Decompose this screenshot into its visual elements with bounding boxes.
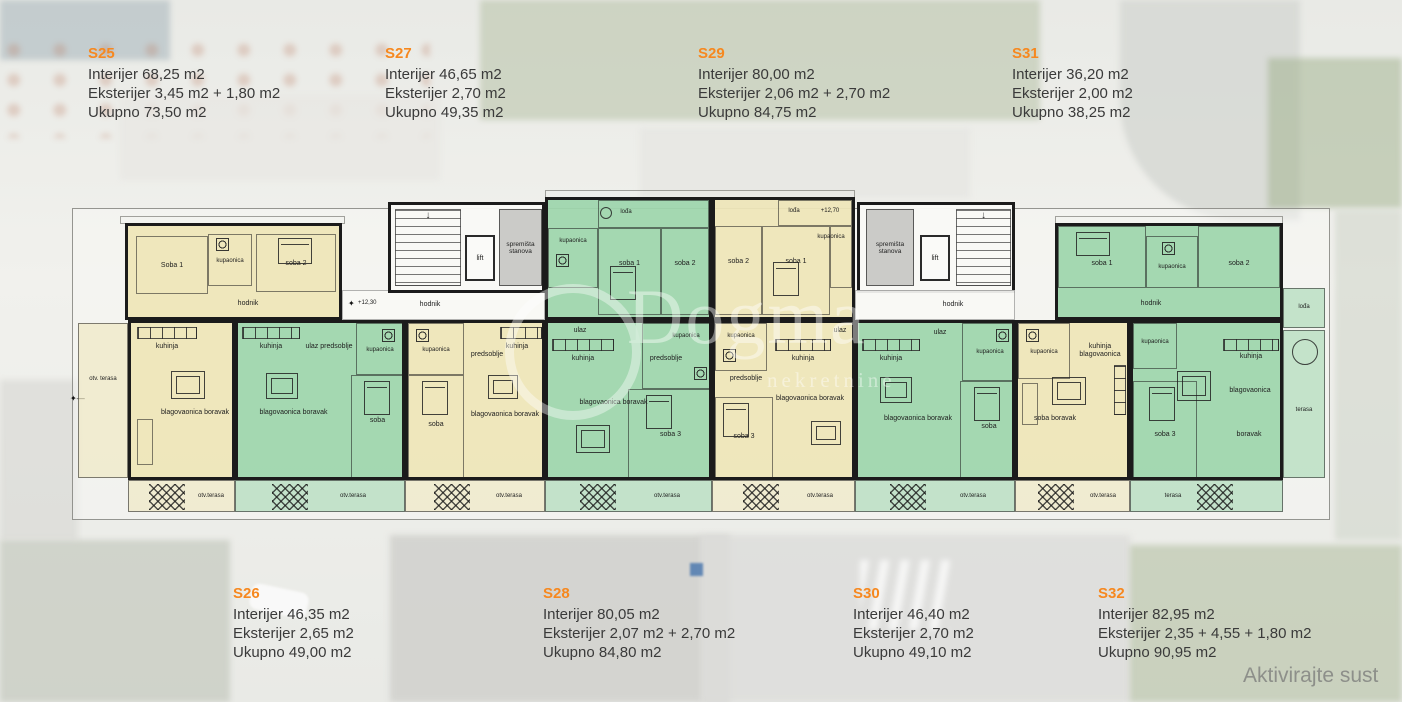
terrace-right: terasa xyxy=(1283,330,1325,478)
terrace-hatch-icon xyxy=(890,484,926,510)
terrace-hatch-icon xyxy=(743,484,779,510)
apartment-s25-wing: Soba 1 kupaonica soba 2 hodnik xyxy=(125,223,342,320)
room-label-soba: soba xyxy=(351,417,404,425)
room-label-kuhinja: kuhinja xyxy=(492,343,542,351)
dining-table-icon xyxy=(1052,377,1086,405)
unit-total: Ukupno 84,75 m2 xyxy=(698,103,1018,122)
terrace-right-label: terasa xyxy=(1286,407,1322,414)
terrace-s30: otv.terasa xyxy=(855,480,1015,512)
storage-room: spremišta stanova xyxy=(866,209,914,286)
background-right-strip xyxy=(1335,210,1402,540)
unit-exterior: Eksterijer 2,06 m2 + 2,70 m2 xyxy=(698,84,1018,103)
terrace-s27: otv.terasa xyxy=(405,480,545,512)
room-label-predsoblje: predsoblje xyxy=(723,375,769,383)
level-label: +12,30 xyxy=(358,300,388,307)
unit-interior: Interijer 82,95 m2 xyxy=(1098,605,1402,624)
washer-icon xyxy=(556,254,569,267)
apartment-s29: kupaonica predsoblje kuhinja ulaz blagov… xyxy=(712,320,855,480)
background-sign xyxy=(690,563,703,576)
terrace-s28: otv.terasa xyxy=(545,480,712,512)
room-label-kupaonica-top: kupaonica xyxy=(1146,264,1198,271)
room-label-blagovaonica: blagovaonica boravak xyxy=(159,409,231,417)
unit-id: S25 xyxy=(88,44,408,63)
sofa-icon xyxy=(137,419,153,465)
terrace-label: otv.terasa xyxy=(484,493,534,500)
unit-id: S28 xyxy=(543,584,863,603)
apartment-s25: kuhinja blagovaonica boravak xyxy=(128,320,235,480)
kitchen-appliances-icon xyxy=(137,327,197,339)
background-building-top xyxy=(640,128,970,198)
room-label-kuhinja: kuhinja xyxy=(862,355,920,363)
room-label-ulaz: ulaz xyxy=(560,327,600,335)
room-label-soba3: soba 3 xyxy=(1133,431,1197,439)
room-label-kupaonica: kupaonica xyxy=(208,258,252,265)
storage-label: spremišta stanova xyxy=(869,241,911,255)
apartment-s32: kupaonica kuhinja blagovaonica soba 3 bo… xyxy=(1130,320,1283,480)
corridor-label-2: hodnik xyxy=(920,301,986,309)
unit-info-s26: S26 Interijer 46,35 m2 Eksterijer 2,65 m… xyxy=(233,584,553,662)
bed-icon xyxy=(610,266,636,300)
dining-table-icon xyxy=(171,371,205,399)
room-label-kupaonica: kupaonica xyxy=(1018,349,1070,356)
dining-table-icon xyxy=(811,421,841,445)
bed-icon xyxy=(364,381,390,415)
apartment-s31: kupaonica kuhinja blagovaonica soba bora… xyxy=(1015,320,1130,480)
room-kupaonica xyxy=(715,323,767,371)
unit-interior: Interijer 68,25 m2 xyxy=(88,65,408,84)
stairs-icon: ↓ xyxy=(395,209,461,286)
stairs-icon: ↓ xyxy=(956,209,1011,286)
unit-interior: Interijer 46,35 m2 xyxy=(233,605,553,624)
dining-table-icon xyxy=(488,375,518,399)
background-paving-left xyxy=(0,380,78,540)
room-label-loda: lođa xyxy=(606,209,646,216)
room-label-kupaonica-top: kupaonica xyxy=(807,234,855,241)
room-label-soba: soba xyxy=(408,421,464,429)
unit-id: S31 xyxy=(1012,44,1332,63)
room-label-kupaonica-top: kupaonica xyxy=(548,238,598,245)
bed-icon xyxy=(278,238,312,264)
corridor-label: hodnik xyxy=(400,301,460,309)
washer-icon xyxy=(382,329,395,342)
room-label-kupaonica: kupaonica xyxy=(356,347,404,354)
bed-icon xyxy=(1149,387,1175,421)
page: { "accent": "#f6881f", "colors": { "apar… xyxy=(0,0,1402,702)
dining-table-icon xyxy=(576,425,610,453)
unit-interior: Interijer 46,65 m2 xyxy=(385,65,705,84)
kitchen-appliances-icon xyxy=(775,339,831,351)
washer-icon xyxy=(216,238,229,251)
room-label-soba3: soba 3 xyxy=(628,431,713,439)
unit-interior: Interijer 80,05 m2 xyxy=(543,605,863,624)
kitchen-appliances-icon xyxy=(1114,365,1126,415)
room-label-kupaonica: kupaonica xyxy=(408,347,464,354)
apartment-s28-wing: lođa kupaonica soba 1 soba 2 xyxy=(545,197,712,320)
room-label-kuhinja: kuhinja xyxy=(1223,353,1279,361)
room-label-kupaonica: kupaonica xyxy=(715,333,767,340)
room-label-kupaonica: kupaonica xyxy=(962,349,1018,356)
unit-total: Ukupno 84,80 m2 xyxy=(543,643,863,662)
room-label-kupaonica: kupaonica xyxy=(1133,339,1177,346)
room-soba2 xyxy=(715,226,762,315)
bed-icon xyxy=(646,395,672,429)
bed-icon xyxy=(422,381,448,415)
kitchen-appliances-icon xyxy=(862,339,920,351)
unit-info-s25: S25 Interijer 68,25 m2 Eksterijer 3,45 m… xyxy=(88,44,408,122)
lift: lift xyxy=(465,235,495,281)
room-label-hodnik: hodnik xyxy=(1120,300,1182,308)
room-label-soba: soba xyxy=(960,423,1018,431)
washer-icon xyxy=(416,329,429,342)
washer-icon xyxy=(723,349,736,362)
unit-info-s27: S27 Interijer 46,65 m2 Eksterijer 2,70 m… xyxy=(385,44,705,122)
unit-exterior: Eksterijer 2,07 m2 + 2,70 m2 xyxy=(543,624,863,643)
unit-id: S26 xyxy=(233,584,553,603)
washer-icon xyxy=(694,367,707,380)
washer-icon xyxy=(996,329,1009,342)
kitchen-appliances-icon xyxy=(500,327,542,339)
room-loda-right: lođa xyxy=(1283,288,1325,328)
room-label-blagovaonica: blagovaonica boravak xyxy=(468,411,542,419)
terrace-hatch-icon xyxy=(1197,484,1233,510)
unit-exterior: Eksterijer 2,00 m2 xyxy=(1012,84,1332,103)
room-label-kuhinja: kuhinja xyxy=(137,343,197,351)
terrace-hatch-icon xyxy=(580,484,616,510)
terrace-s29: otv.terasa xyxy=(712,480,855,512)
room-label-kupaonica: kupaonica xyxy=(660,333,712,340)
terrace-left: otv. terasa xyxy=(78,323,128,478)
os-activation-watermark: Aktivirajte sust xyxy=(1243,664,1378,688)
unit-info-s29: S29 Interijer 80,00 m2 Eksterijer 2,06 m… xyxy=(698,44,1018,122)
room-label-ulaz: ulaz predsoblje xyxy=(304,343,354,351)
apartment-s28: ulaz kuhinja blagovaonica boravak kupaon… xyxy=(545,320,712,480)
room-label-loda-right: lođa xyxy=(1286,304,1322,311)
washer-icon xyxy=(1026,329,1039,342)
room-label-predsoblje: predsoblje xyxy=(642,355,690,363)
unit-id: S29 xyxy=(698,44,1018,63)
room-label-loda: lođa xyxy=(779,208,809,215)
lift: lift xyxy=(920,235,950,281)
room-label-boravak: boravak xyxy=(1219,431,1279,439)
room-label-kuhinja: kuhinja xyxy=(552,355,614,363)
floor-plan: ✦— Soba 1 kupaonica soba 2 hodnik ✦ +12,… xyxy=(70,190,1340,535)
room-label-blagovaonica: blagovaonica xyxy=(1219,387,1281,395)
apartment-s26: kuhinja ulaz predsoblje kupaonica blagov… xyxy=(235,320,405,480)
terrace-s25: otv.terasa xyxy=(128,480,235,512)
unit-total: Ukupno 38,25 m2 xyxy=(1012,103,1332,122)
apartment-s27: kupaonica predsoblje kuhinja soba blagov… xyxy=(405,320,545,480)
apartment-s30: kuhinja ulaz kupaonica blagovaonica bora… xyxy=(855,320,1015,480)
round-table-icon xyxy=(1292,339,1318,365)
storage-label: spremišta stanova xyxy=(502,241,539,255)
room-label-blagovaonica: blagovaonica boravak xyxy=(256,409,331,417)
room-label-blagovaonica: blagovaonica boravak xyxy=(771,395,849,403)
dining-table-icon xyxy=(880,377,912,403)
terrace-hatch-icon xyxy=(1038,484,1074,510)
kitchen-appliances-icon xyxy=(552,339,614,351)
washer-icon xyxy=(1162,242,1175,255)
unit-info-s32: S32 Interijer 82,95 m2 Eksterijer 2,35 +… xyxy=(1098,584,1402,662)
terrace-s32: terasa xyxy=(1130,480,1283,512)
room-label-ulaz: ulaz xyxy=(825,327,855,335)
dining-table-icon xyxy=(266,373,298,399)
room-kupaonica xyxy=(1133,323,1177,369)
terrace-left-label: otv. terasa xyxy=(80,376,126,383)
terrace-s31: otv.terasa xyxy=(1015,480,1130,512)
unit-total: Ukupno 90,95 m2 xyxy=(1098,643,1402,662)
unit-total: Ukupno 49,00 m2 xyxy=(233,643,553,662)
table-round-icon xyxy=(600,207,612,219)
room-label-kuhinja: kuhinja xyxy=(775,355,831,363)
level-marker-icon: ✦ xyxy=(348,299,355,308)
level-label-2: +12,70 xyxy=(811,208,849,215)
room-label-predsoblje: predsoblje xyxy=(464,351,510,359)
room-label-soba2: soba 2 xyxy=(715,258,762,266)
unit-id: S27 xyxy=(385,44,705,63)
kitchen-appliances-icon xyxy=(242,327,300,339)
background-green-bottom-left xyxy=(0,540,230,702)
room-label-kuhinja: kuhinja xyxy=(242,343,300,351)
unit-info-s28: S28 Interijer 80,05 m2 Eksterijer 2,07 m… xyxy=(543,584,863,662)
kitchen-appliances-icon xyxy=(1223,339,1279,351)
bed-icon xyxy=(1076,232,1110,256)
room-label-ulaz: ulaz xyxy=(922,329,958,337)
unit-interior: Interijer 36,20 m2 xyxy=(1012,65,1332,84)
terrace-label: otv.terasa xyxy=(1080,493,1126,500)
room-label-soba1: soba 1 xyxy=(1058,260,1146,268)
unit-interior: Interijer 80,00 m2 xyxy=(698,65,1018,84)
unit-total: Ukupno 49,35 m2 xyxy=(385,103,705,122)
unit-info-s31: S31 Interijer 36,20 m2 Eksterijer 2,00 m… xyxy=(1012,44,1332,122)
room-label-kuhinja: kuhinja blagovaonica xyxy=(1072,343,1128,359)
terrace-label: otv.terasa xyxy=(948,493,998,500)
terrace-hatch-icon xyxy=(434,484,470,510)
sofa-icon xyxy=(1022,383,1038,425)
unit-total: Ukupno 73,50 m2 xyxy=(88,103,408,122)
terrace-label: otv.terasa xyxy=(189,493,233,500)
terrace-hatch-icon xyxy=(272,484,308,510)
unit-exterior: Eksterijer 2,65 m2 xyxy=(233,624,553,643)
terrace-hatch-icon xyxy=(149,484,185,510)
storage-room: spremišta stanova xyxy=(499,209,542,286)
terrace-label: otv.terasa xyxy=(795,493,845,500)
terrace-label: otv.terasa xyxy=(328,493,378,500)
room-label-hodnik: hodnik xyxy=(218,300,278,308)
apartment-s29-wing: lođa +12,70 soba 2 soba 1 kupaonica xyxy=(712,197,855,320)
bed-icon xyxy=(974,387,1000,421)
terrace-s26: otv.terasa xyxy=(235,480,405,512)
apartment-s32-wing: soba 1 kupaonica soba 2 hodnik xyxy=(1055,223,1283,320)
unit-id: S32 xyxy=(1098,584,1402,603)
room-label-soba2: soba 2 xyxy=(1198,260,1280,268)
unit-exterior: Eksterijer 2,35 + 4,55 + 1,80 m2 xyxy=(1098,624,1402,643)
room-label-soba2: soba 2 xyxy=(661,260,709,268)
lift-label: lift xyxy=(932,255,939,262)
room-label-blagovaonica: blagovaonica boravak xyxy=(882,415,954,423)
bed-icon xyxy=(723,403,749,437)
terrace-label: otv.terasa xyxy=(642,493,692,500)
room-soba2 xyxy=(1198,226,1280,288)
stair-core-2: spremišta stanova lift ↓ xyxy=(857,202,1015,293)
room-soba2 xyxy=(661,228,709,315)
terrace-label: terasa xyxy=(1151,493,1195,500)
bed-icon xyxy=(773,262,799,296)
stair-core-1: ↓ lift spremišta stanova xyxy=(388,202,545,293)
room-label-soba1: Soba 1 xyxy=(136,262,208,270)
lift-label: lift xyxy=(477,255,484,262)
unit-exterior: Eksterijer 2,70 m2 xyxy=(385,84,705,103)
unit-exterior: Eksterijer 3,45 m2 + 1,80 m2 xyxy=(88,84,408,103)
